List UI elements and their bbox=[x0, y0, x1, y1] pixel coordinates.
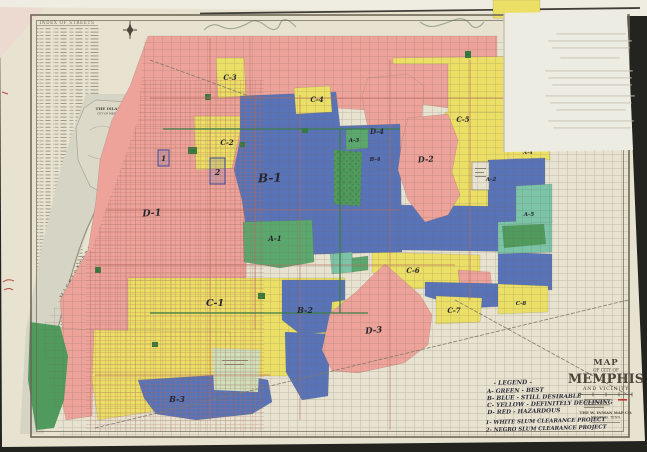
zone-label-a5: A-5 bbox=[523, 212, 535, 218]
zone-label-c4: C-4 bbox=[310, 95, 323, 104]
zone-label-b3: B-3 bbox=[168, 394, 185, 404]
zone-label-c6: C-6 bbox=[406, 266, 419, 275]
zone-label-b2: B-2 bbox=[296, 305, 313, 315]
scanned-holc-map-of-memphis: INDEX OF STREETS THE ISLAND CITY OF MEMP… bbox=[0, 0, 647, 452]
zone-label-d1: D-1 bbox=[141, 208, 162, 220]
zone-label-c8: C-8 bbox=[516, 301, 527, 307]
zone-label-d2: D-2 bbox=[416, 153, 434, 164]
title-city: MEMPHIS bbox=[568, 372, 644, 387]
legend-heading: - LEGEND - bbox=[493, 379, 532, 387]
slum-project-2-label: 2 bbox=[214, 167, 221, 177]
zone-label-a2: A-2 bbox=[485, 177, 497, 183]
zone-label-b4: B-4 bbox=[369, 157, 381, 163]
title-vicinity: AND VICINITY bbox=[582, 386, 629, 392]
zone-label-a1: A-1 bbox=[267, 234, 281, 243]
zone-label-c7: C-7 bbox=[447, 306, 460, 315]
publisher: THE W. INMAN MAP CO. bbox=[580, 410, 634, 415]
zone-label-d3: D-3 bbox=[364, 325, 383, 337]
overlay-paper-sheet bbox=[504, 11, 635, 152]
title-map: MAP bbox=[593, 358, 618, 368]
index-heading-rule bbox=[37, 25, 98, 26]
zone-label-c3: C-3 bbox=[223, 73, 236, 82]
zone-label-c5: C-5 bbox=[456, 115, 469, 124]
zone-label-a3: A-3 bbox=[348, 138, 360, 144]
slum-project-1-label: 1 bbox=[161, 154, 166, 163]
zone-label-c2: C-2 bbox=[220, 138, 233, 147]
mini-legend-red-swatch bbox=[618, 399, 627, 401]
zone-label-c1: C-1 bbox=[206, 298, 224, 309]
map-canvas: INDEX OF STREETS THE ISLAND CITY OF MEMP… bbox=[0, 0, 647, 452]
street-index-heading: INDEX OF STREETS bbox=[39, 21, 94, 26]
zone-label-b1: B-1 bbox=[257, 171, 282, 186]
zone-label-d4: D-4 bbox=[369, 127, 384, 136]
